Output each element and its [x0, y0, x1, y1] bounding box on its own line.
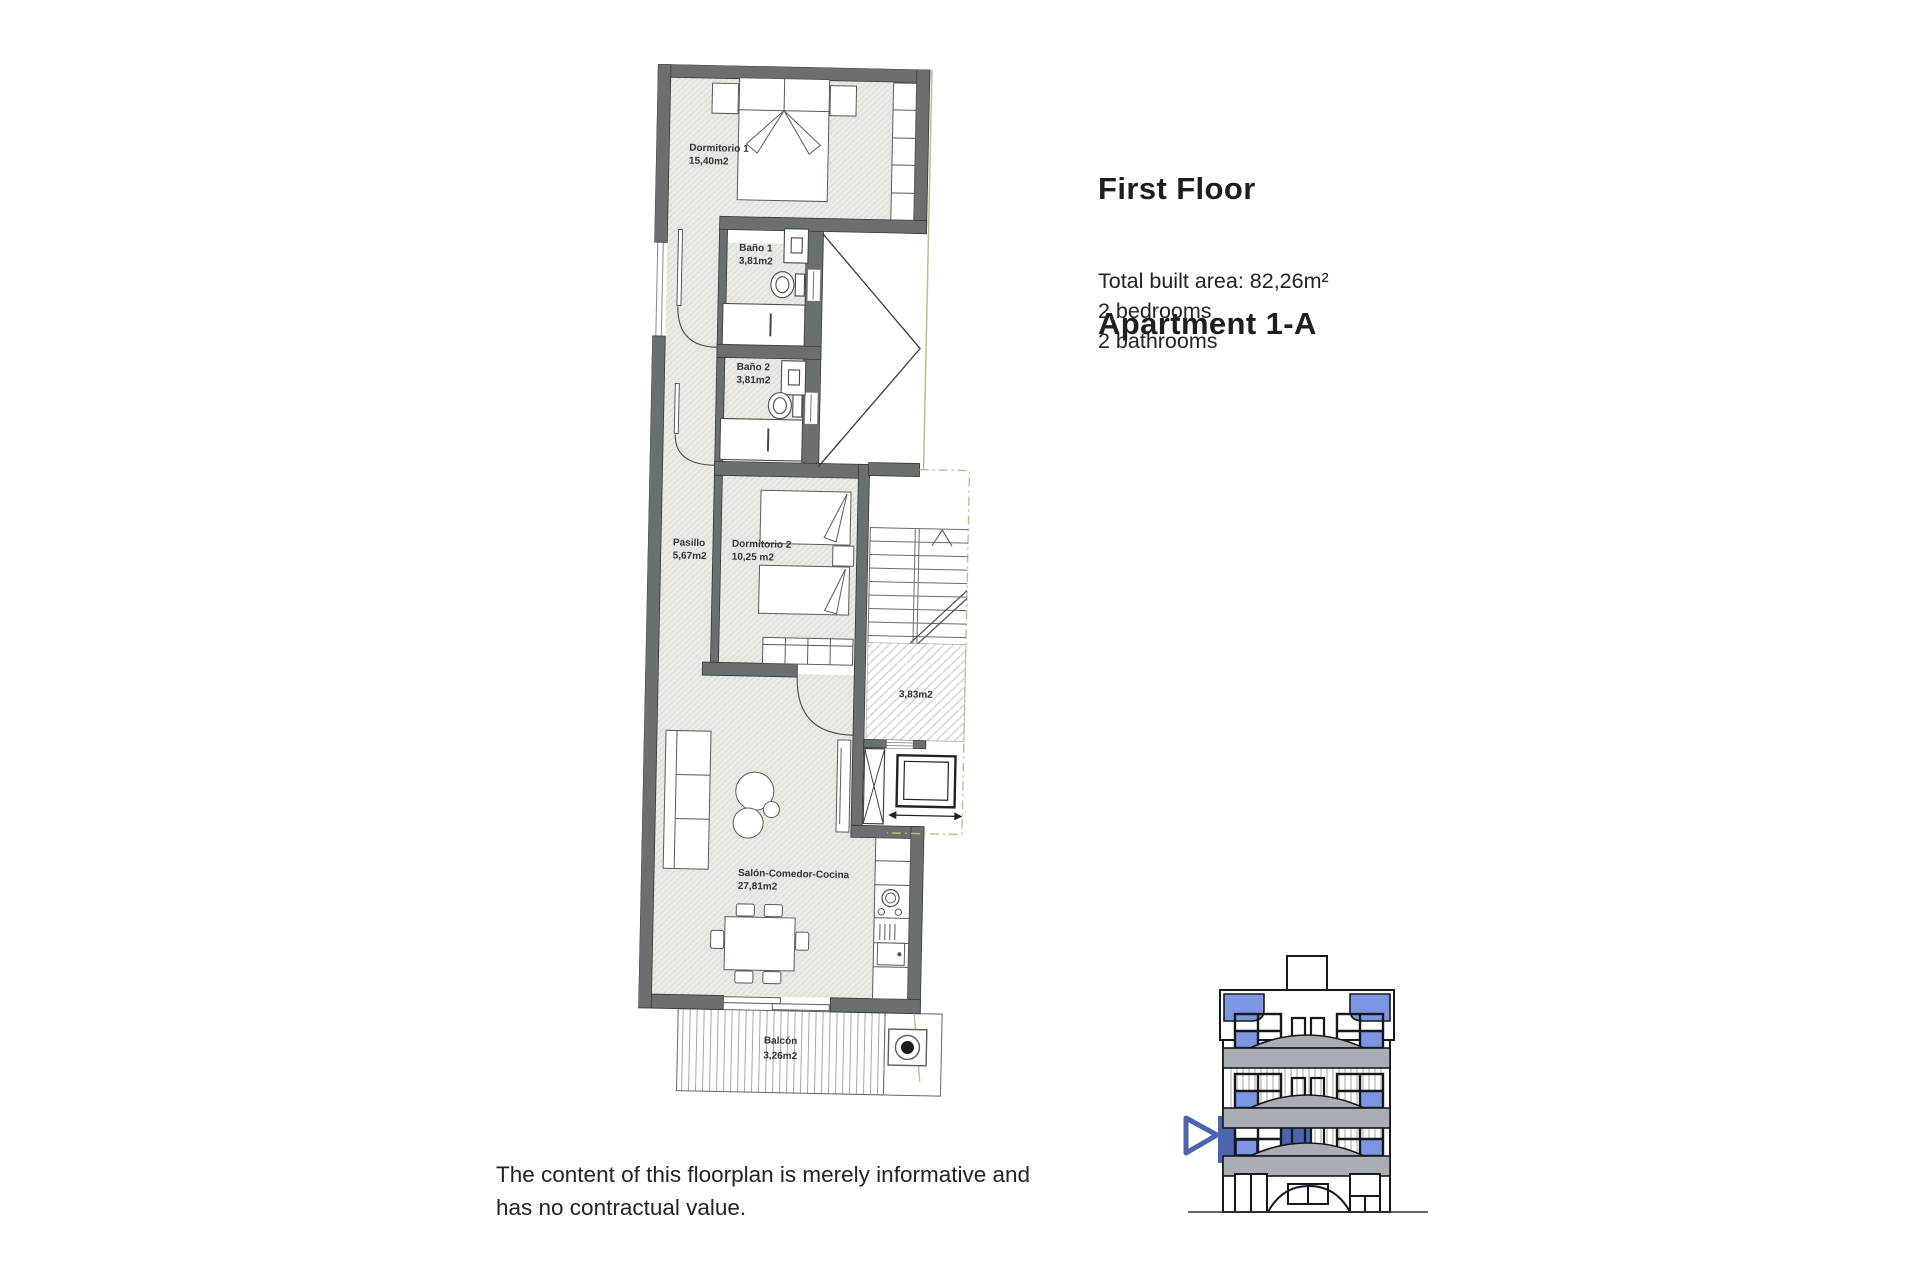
floorplan-svg: Dormitorio 1 15,40m2 Baño 1 3,81m2 Baño …: [636, 64, 988, 1121]
label-bano2-name: Baño 2: [737, 362, 771, 374]
label-dormitorio1-area: 15,40m2: [689, 156, 729, 168]
apartment-summary: Total built area: 82,26m² 2 bedrooms 2 b…: [1098, 266, 1329, 356]
label-salon-area: 27,81m2: [738, 881, 778, 893]
floorplan-drawing: Dormitorio 1 15,40m2 Baño 1 3,81m2 Baño …: [636, 64, 988, 1121]
location-arrow-icon: [1186, 1118, 1217, 1153]
label-dormitorio2-area: 10,25 m2: [732, 552, 775, 564]
label-dormitorio1-name: Dormitorio 1: [689, 143, 749, 155]
elevator: [863, 748, 964, 825]
label-dormitorio2-name: Dormitorio 2: [732, 539, 792, 551]
summary-bedrooms: 2 bedrooms: [1098, 296, 1329, 326]
disclaimer-text: The content of this floorplan is merely …: [496, 1158, 1196, 1224]
label-bano1-name: Baño 1: [739, 243, 773, 255]
summary-built-area: Total built area: 82,26m²: [1098, 266, 1329, 296]
building-elevation: [1140, 948, 1440, 1240]
void-chevron: [819, 235, 923, 469]
building-elevation-svg: [1140, 948, 1440, 1240]
label-bano2-area: 3,81m2: [736, 375, 771, 387]
disclaimer-line2: has no contractual value.: [496, 1191, 1196, 1224]
label-pasillo-area: 5,67m2: [673, 550, 708, 562]
page-title-line1: First Floor: [1098, 166, 1317, 211]
label-pasillo-name: Pasillo: [673, 537, 705, 549]
disclaimer-line1: The content of this floorplan is merely …: [496, 1158, 1196, 1191]
label-balcon-area: 3,26m2: [763, 1050, 798, 1062]
stairs: [868, 528, 968, 645]
summary-bathrooms: 2 bathrooms: [1098, 326, 1329, 356]
roof-box: [1287, 956, 1327, 992]
label-salon-name: Salón-Comedor-Cocina: [738, 868, 850, 881]
label-landing-area: 3,83m2: [899, 689, 934, 701]
label-balcon-name: Balcón: [764, 1035, 798, 1047]
label-bano1-area: 3,81m2: [739, 256, 774, 268]
